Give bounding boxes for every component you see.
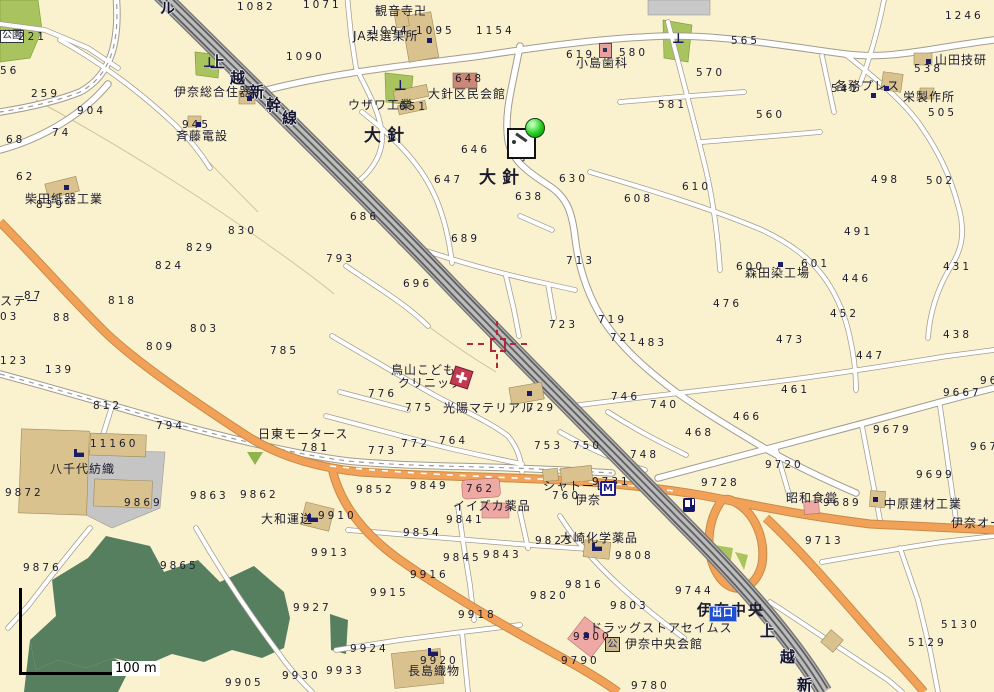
lot-number-label: 9820: [530, 591, 569, 602]
lot-number-label: 498: [871, 175, 900, 186]
lot-number-label: 1095: [416, 26, 455, 37]
place-label: 観音寺卍: [375, 5, 427, 18]
lot-number-label: 600: [736, 262, 765, 273]
lot-number-label: 9933: [326, 666, 365, 677]
place-label: 斉藤電設: [176, 130, 228, 143]
lot-number-label: 221: [18, 32, 47, 43]
map-viewport[interactable]: ル上越新幹線上越新公園10821071115410941095109012462…: [0, 0, 994, 692]
lot-number-label: 476: [713, 299, 742, 310]
lot-number-label: 9852: [356, 485, 395, 496]
building-dot-icon: [196, 122, 201, 127]
lot-number-label: 9713: [805, 536, 844, 547]
lot-number-label: 781: [301, 443, 330, 454]
lot-number-label: 56: [0, 66, 19, 77]
lot-number-label: 502: [926, 176, 955, 187]
lot-number-label: 740: [650, 400, 679, 411]
lot-number-label: 904: [77, 106, 106, 117]
lot-number-label: 750: [573, 441, 602, 452]
building-dot-icon: [778, 262, 783, 267]
lot-number-label: 466: [733, 412, 762, 423]
place-label: 山田技研: [935, 54, 987, 67]
lot-number-label: 776: [368, 389, 397, 400]
lot-number-label: 610: [682, 182, 711, 193]
lot-number-label: 452: [830, 309, 859, 320]
lot-number-label: 74: [52, 128, 71, 139]
lot-number-label: 9905: [225, 678, 264, 689]
lot-number-label: 9843: [483, 550, 522, 561]
lot-number-label: 9869: [124, 498, 163, 509]
district-label: 大針: [479, 170, 525, 188]
lot-number-label: 809: [146, 342, 175, 353]
lot-number-label: 638: [515, 192, 544, 203]
lot-number-label: 62: [16, 172, 35, 183]
lot-number-label: 648: [455, 74, 484, 85]
public-hall-icon: 公: [605, 637, 620, 652]
scale-bar-label: 100 m: [112, 661, 160, 676]
lot-number-label: 570: [696, 68, 725, 79]
place-label: 伊奈総合住器: [174, 86, 252, 99]
lot-number-label: 9910: [318, 511, 357, 522]
lot-number-label: 96: [980, 376, 994, 387]
lot-number-label: 793: [326, 254, 355, 265]
building-dot-icon: [884, 86, 889, 91]
lot-number-label: 1246: [945, 11, 984, 22]
dentist-icon: [599, 43, 612, 58]
railway-name-label: 上: [760, 624, 775, 640]
building-dot-icon: [926, 59, 931, 64]
lot-number-label: 11160: [90, 439, 138, 450]
lot-number-label: 9849: [410, 481, 449, 492]
lot-number-label: 447: [856, 351, 885, 362]
lot-number-label: 9845: [443, 553, 482, 564]
lot-number-label: 686: [350, 212, 379, 223]
place-label: ステー: [0, 295, 39, 308]
scale-bar: [19, 588, 114, 675]
place-label: 中原建材工業: [884, 498, 962, 511]
torii-icon: ⊥: [394, 80, 407, 92]
lot-number-label: 723: [549, 320, 578, 331]
lot-number-label: 03: [0, 312, 19, 323]
lot-number-label: 721: [610, 333, 639, 344]
place-label: 伊奈: [575, 494, 601, 507]
place-label: 大崎化学薬品: [560, 532, 638, 545]
lot-number-label: 259: [31, 89, 60, 100]
lot-number-label: 794: [156, 421, 185, 432]
district-label: 大針: [364, 128, 410, 146]
lot-number-label: 773: [368, 446, 397, 457]
lot-number-label: 1082: [237, 2, 276, 13]
lot-number-label: 9728: [701, 478, 740, 489]
place-label: 大針区民会館: [428, 88, 506, 101]
lot-number-label: 565: [731, 36, 760, 47]
place-label: 八千代紡織: [50, 463, 115, 476]
place-label: 長島織物: [408, 665, 460, 678]
lot-number-label: 9790: [561, 656, 600, 667]
lot-number-label: 461: [781, 385, 810, 396]
lot-number-label: 9872: [5, 488, 44, 499]
lot-number-label: 9876: [23, 563, 62, 574]
lot-number-label: 729: [527, 403, 556, 414]
lot-number-label: 9854: [403, 528, 442, 539]
place-label: 鳥山こども: [391, 364, 456, 377]
lot-number-label: 619: [566, 50, 595, 61]
place-label: 栄製作所: [903, 91, 955, 104]
lot-number-label: 9780: [631, 681, 670, 692]
lot-number-label: 68: [6, 135, 25, 146]
lot-number-label: 581: [658, 100, 687, 111]
lot-number-label: 651: [399, 102, 428, 113]
lot-number-label: 818: [108, 296, 137, 307]
lot-number-label: 9689: [823, 498, 862, 509]
lot-number-label: 88: [53, 313, 72, 324]
building-dot-icon: [247, 96, 252, 101]
lot-number-label: 9915: [370, 588, 409, 599]
lot-number-label: 560: [756, 110, 785, 121]
place-label: 各務プレス: [835, 80, 900, 93]
lot-number-label: 491: [844, 227, 873, 238]
lot-number-label: 689: [451, 234, 480, 245]
lot-number-label: 762: [466, 484, 495, 495]
search-result-pin-icon[interactable]: [525, 118, 545, 138]
lot-number-label: 608: [624, 194, 653, 205]
place-label: イイズカ薬品: [453, 500, 531, 513]
lot-number-label: 9863: [190, 491, 229, 502]
lot-number-label: 812: [93, 401, 122, 412]
lot-number-label: 438: [943, 330, 972, 341]
lot-number-label: 764: [439, 436, 468, 447]
lot-number-label: 839: [36, 200, 65, 211]
lot-number-label: 139: [45, 365, 74, 376]
m-store-icon: M: [600, 481, 616, 496]
lot-number-label: 9916: [410, 570, 449, 581]
building-dot-icon: [427, 38, 432, 43]
lot-number-label: 785: [270, 346, 299, 357]
lot-number-label: 746: [611, 392, 640, 403]
lot-number-label: 446: [842, 274, 871, 285]
lot-number-label: 9924: [350, 644, 389, 655]
lot-number-label: 473: [776, 335, 805, 346]
lot-number-label: 9918: [458, 610, 497, 621]
map-center-crosshair-icon: [467, 321, 527, 369]
place-label: JA梨選果所: [353, 30, 419, 43]
lot-number-label: 9720: [765, 460, 804, 471]
railway-name-label: 線: [282, 111, 297, 127]
lot-number-label: 753: [534, 441, 563, 452]
lot-number-label: 713: [566, 256, 595, 267]
lot-number-label: 9803: [610, 601, 649, 612]
lot-number-label: 9927: [293, 603, 332, 614]
torii-icon: ⊥: [672, 33, 685, 45]
lot-number-label: 647: [434, 175, 463, 186]
building-dot-icon: [527, 391, 532, 396]
place-label: 伊奈オー: [951, 517, 994, 530]
lot-number-label: 9930: [282, 671, 321, 682]
lot-number-label: 9816: [565, 580, 604, 591]
lot-number-label: 9808: [615, 551, 654, 562]
lot-number-label: 824: [155, 261, 184, 272]
building-dot-icon: [873, 497, 878, 502]
lot-number-label: 468: [685, 428, 714, 439]
railway-name-label: 幹: [266, 98, 281, 114]
building-dot-icon: [64, 185, 69, 190]
lot-number-label: 829: [186, 243, 215, 254]
building-dot-icon: [871, 93, 876, 98]
lot-number-label: 646: [461, 145, 490, 156]
lot-number-label: 483: [638, 338, 667, 349]
lot-number-label: 580: [619, 48, 648, 59]
lot-number-label: 1154: [476, 26, 515, 37]
place-label: 伊奈中央会館: [625, 638, 703, 651]
gas-station-icon: [683, 498, 695, 512]
building-dot-icon: [584, 633, 589, 638]
lot-number-label: 772: [401, 439, 430, 450]
station-exit-badge: 出口: [709, 606, 737, 622]
lot-number-label: 775: [405, 403, 434, 414]
place-label: 日東モータース: [258, 428, 348, 441]
lot-number-label: 830: [228, 226, 257, 237]
lot-number-label: 9913: [311, 548, 350, 559]
lot-number-label: 505: [928, 108, 957, 119]
railway-name-label: ル: [160, 1, 175, 17]
lot-number-label: 630: [559, 174, 588, 185]
lot-number-label: 1071: [303, 0, 342, 11]
lot-number-label: 601: [801, 259, 830, 270]
lot-number-label: 5130: [941, 620, 980, 631]
torii-icon: ⊥: [203, 57, 216, 69]
place-label: 大和運送: [261, 513, 313, 526]
lot-number-label: 9841: [446, 515, 485, 526]
lot-number-label: 9667: [943, 388, 982, 399]
railway-name-label: 新: [797, 678, 812, 692]
lot-number-label: 431: [943, 262, 972, 273]
railway-name-label: 越: [780, 650, 795, 666]
lot-number-label: 9744: [675, 586, 714, 597]
pin-foot: [512, 140, 516, 144]
lot-number-label: 696: [403, 279, 432, 290]
lot-number-label: 803: [190, 324, 219, 335]
lot-number-label: 1090: [286, 52, 325, 63]
lot-number-label: 123: [0, 356, 29, 367]
lot-number-label: 748: [630, 450, 659, 461]
place-label: 光陽マテリアル: [443, 402, 534, 415]
lot-number-label: 9699: [916, 470, 955, 481]
lot-number-label: 9862: [240, 490, 279, 501]
lot-number-label: 9865: [160, 561, 199, 572]
lot-number-label: 5129: [908, 638, 947, 649]
lot-number-label: 9679: [873, 425, 912, 436]
lot-number-label: 967: [970, 442, 994, 453]
lot-number-label: 719: [598, 315, 627, 326]
